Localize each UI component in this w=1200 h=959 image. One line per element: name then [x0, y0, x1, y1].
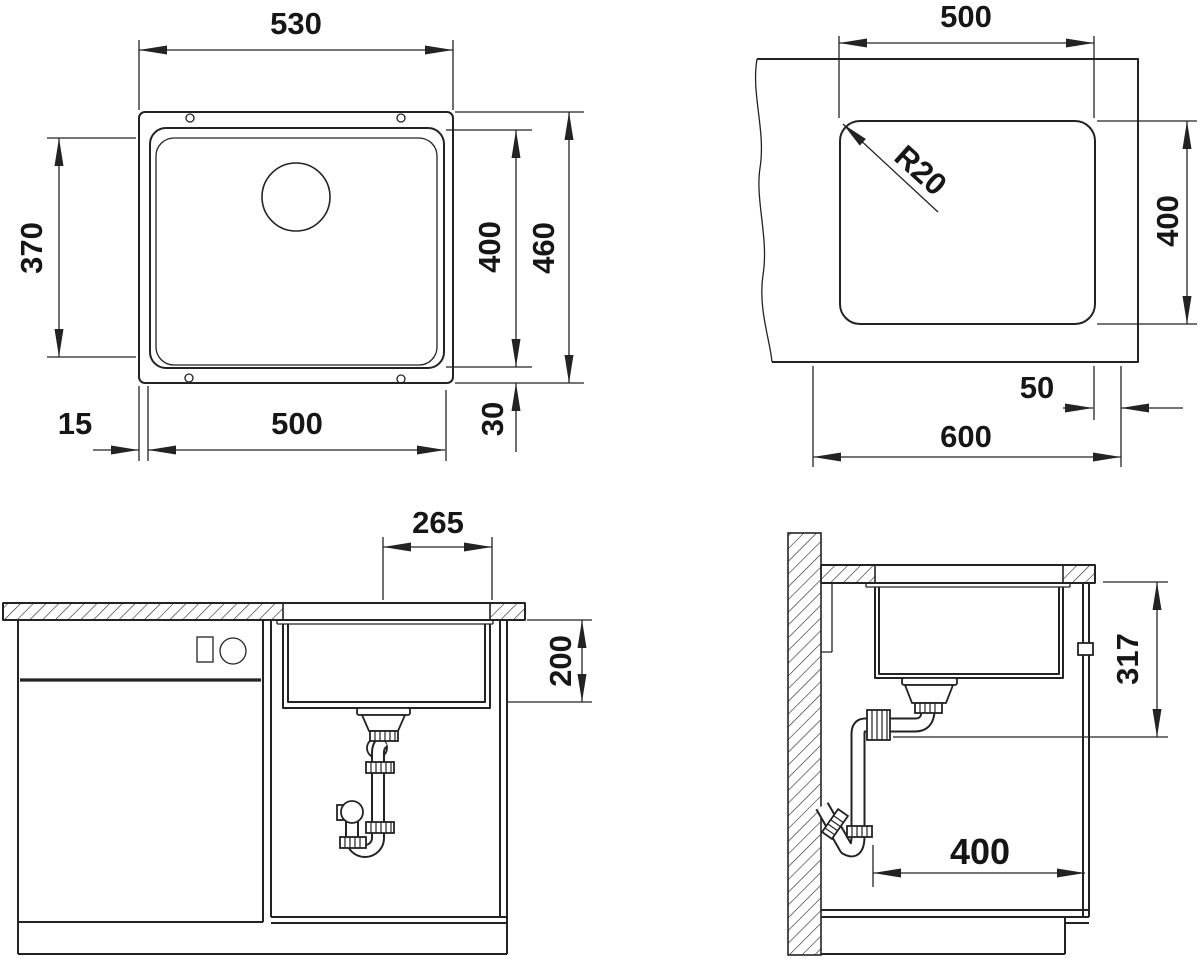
- strainer-nut: [915, 703, 942, 713]
- mounting-hole: [397, 114, 405, 122]
- top-view: 530 370 400 460 30 15 500: [14, 6, 584, 461]
- trap-pipe-fill: [352, 741, 384, 851]
- bowl-outline: [875, 587, 1063, 678]
- cabinet-lines: [18, 620, 507, 954]
- strainer-flange: [357, 708, 410, 715]
- sink-outer-outline: [139, 112, 453, 383]
- wall-section: [788, 533, 821, 955]
- dim-label-bowl-depth: 400: [472, 221, 507, 273]
- dim-label-rear-offset: 50: [1020, 370, 1054, 405]
- dim-label-inner-depth: 370: [14, 222, 49, 274]
- coupling-nut: [366, 762, 394, 773]
- coupling-nut: [847, 826, 872, 837]
- drain-hole: [262, 163, 330, 231]
- bowl-inner-outline: [156, 138, 437, 365]
- waste-trap: [822, 678, 957, 850]
- side-panel-connector: [1078, 643, 1093, 655]
- technical-drawing-svg: 530 370 400 460 30 15 500 500 R20 400 50…: [0, 0, 1200, 959]
- dim-label-mounting-depth: 317: [1110, 633, 1145, 685]
- dim-label-offset-left: 15: [58, 406, 92, 441]
- dim-label-cutout-width: 500: [940, 0, 992, 34]
- cutout-outline: [840, 121, 1095, 324]
- countertop-section-right: [490, 603, 525, 620]
- dimension-arrows: [813, 39, 1192, 462]
- coupling-nut: [366, 822, 394, 833]
- dishwasher-control-rect: [197, 637, 213, 662]
- dim-label-cabinet-width: 600: [940, 419, 992, 454]
- countertop-outline: [757, 59, 1138, 362]
- strainer-body: [362, 715, 405, 731]
- dim-label-cutout-depth: 400: [1150, 195, 1185, 247]
- dishwasher-control-knob: [220, 638, 246, 664]
- strainer-body: [905, 685, 953, 703]
- cabinet-back-rail: [821, 583, 832, 652]
- bowl-outline: [283, 624, 490, 708]
- waste-trap: [337, 708, 410, 851]
- strainer-flange: [902, 678, 957, 685]
- extension-lines: [873, 582, 1168, 887]
- countertop-section-right: [1063, 565, 1095, 583]
- drawing-sheet: 530 370 400 460 30 15 500 500 R20 400 50…: [0, 0, 1200, 959]
- dim-label-bowl-height: 200: [543, 635, 578, 687]
- mounting-hole: [185, 374, 193, 382]
- countertop-break-line: [756, 59, 772, 362]
- dim-label-drain-offset: 265: [412, 505, 464, 540]
- dimension-lines: [813, 43, 1187, 457]
- mounting-hole: [397, 375, 405, 383]
- dim-label-corner-radius: R20: [888, 138, 954, 202]
- dim-label-base-clearance: 400: [950, 831, 1010, 872]
- mounting-hole: [186, 114, 194, 122]
- outlet-elbow-ring: [341, 801, 363, 823]
- strainer-nut: [370, 731, 398, 741]
- countertop-section-left: [3, 603, 283, 620]
- cutout-view: 500 R20 400 50 600: [756, 0, 1197, 467]
- side-view: 317 400: [788, 533, 1168, 955]
- countertop-section-left: [821, 565, 875, 583]
- extension-lines: [813, 36, 1197, 467]
- coupling-nut: [340, 837, 366, 848]
- front-view: 265 200: [3, 505, 592, 954]
- bowl-outer-outline: [150, 128, 444, 368]
- dim-label-bowl-width: 500: [271, 406, 323, 441]
- dim-label-offset-bottom: 30: [475, 402, 510, 436]
- dim-label-outer-depth: 460: [526, 222, 561, 274]
- dim-label-outer-width: 530: [270, 6, 322, 41]
